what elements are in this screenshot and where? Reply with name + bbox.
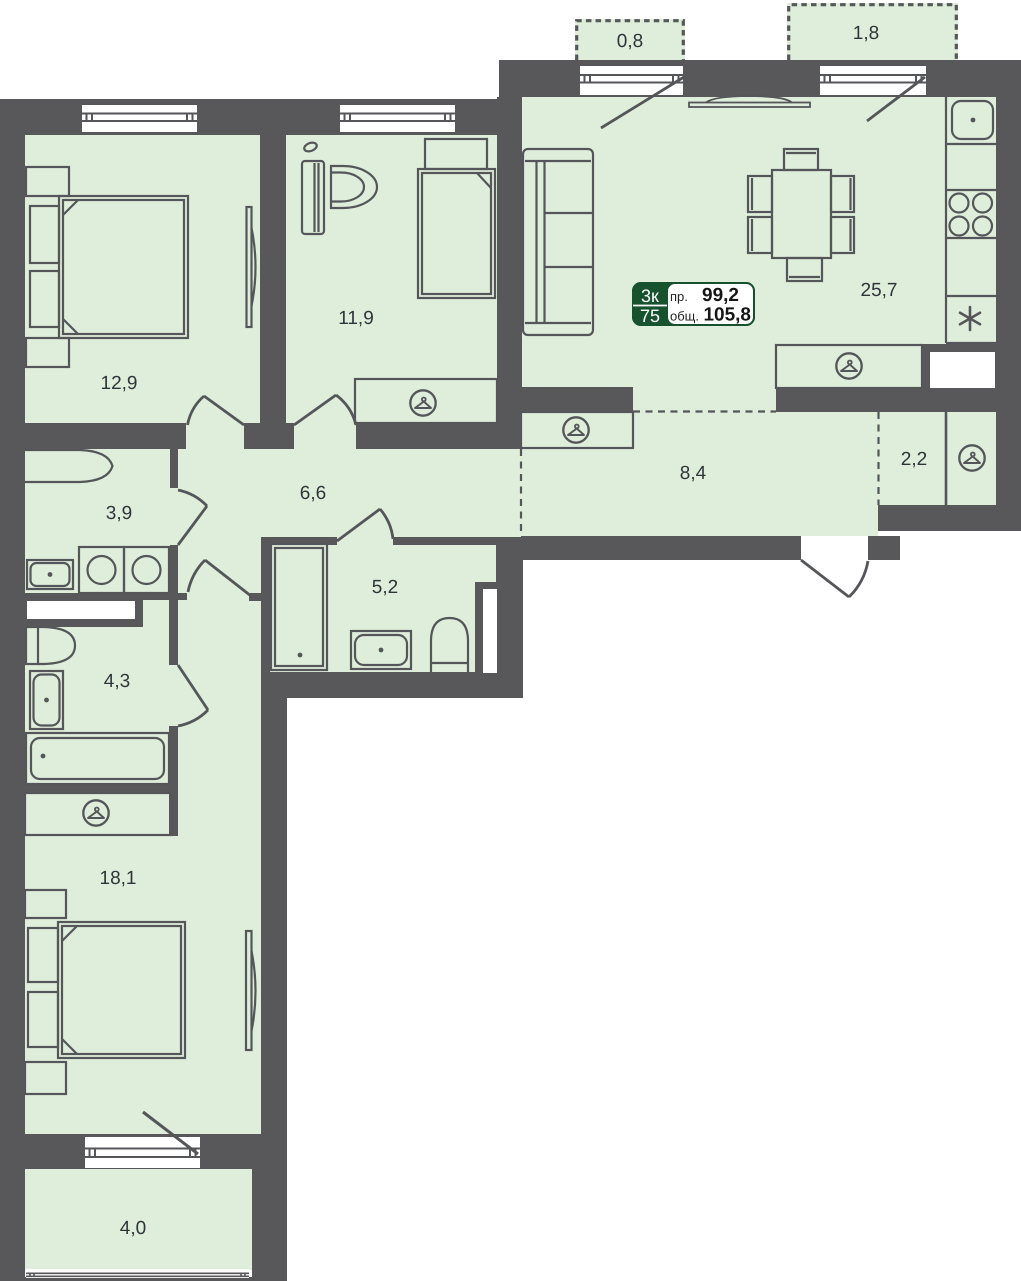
svg-text:99,2: 99,2 [702, 285, 739, 306]
svg-text:2,2: 2,2 [901, 449, 927, 470]
svg-text:75: 75 [640, 306, 660, 326]
svg-text:общ.: общ. [670, 309, 699, 324]
svg-text:25,7: 25,7 [861, 280, 898, 301]
svg-text:12,9: 12,9 [101, 373, 138, 394]
svg-text:18,1: 18,1 [100, 868, 137, 889]
svg-text:4,3: 4,3 [104, 671, 130, 692]
svg-text:105,8: 105,8 [703, 305, 751, 326]
svg-text:8,4: 8,4 [680, 463, 707, 484]
svg-text:3,9: 3,9 [106, 503, 132, 524]
svg-text:5,2: 5,2 [372, 577, 398, 598]
svg-text:3к: 3к [641, 286, 659, 306]
svg-text:11,9: 11,9 [338, 308, 374, 329]
svg-text:1,8: 1,8 [853, 23, 879, 44]
svg-text:6,6: 6,6 [300, 483, 326, 504]
svg-text:4,0: 4,0 [120, 1218, 146, 1239]
svg-text:0,8: 0,8 [617, 31, 643, 52]
svg-text:пр.: пр. [670, 289, 688, 304]
